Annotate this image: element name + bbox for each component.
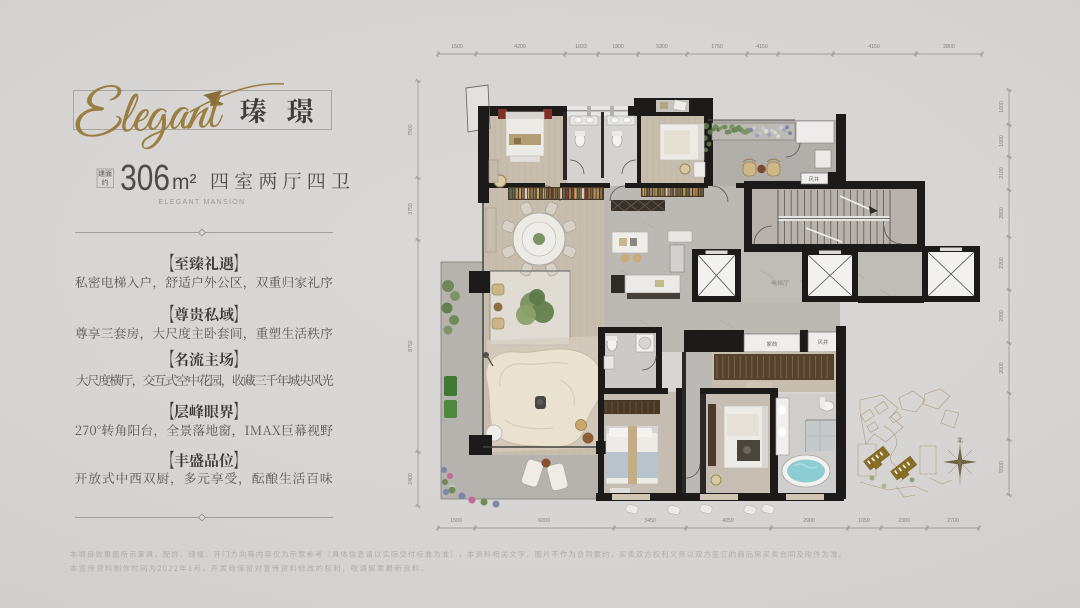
svg-text:2800: 2800	[999, 207, 1005, 219]
svg-text:4150: 4150	[756, 44, 768, 50]
svg-text:5500: 5500	[999, 461, 1005, 473]
svg-text:1800: 1800	[612, 44, 624, 50]
svg-text:7500: 7500	[408, 124, 414, 136]
svg-text:4200: 4200	[514, 44, 526, 50]
svg-text:1500: 1500	[451, 44, 463, 50]
svg-text:ELEGANT MANSION: ELEGANT MANSION	[159, 199, 246, 206]
svg-text:2300: 2300	[898, 518, 910, 524]
svg-text:m²: m²	[172, 171, 197, 194]
svg-text:5300: 5300	[656, 44, 668, 50]
svg-text:3450: 3450	[644, 518, 656, 524]
svg-text:1000: 1000	[999, 101, 1005, 113]
svg-text:2100: 2100	[999, 167, 1005, 179]
svg-text:4050: 4050	[722, 518, 734, 524]
svg-text:6000: 6000	[538, 518, 550, 524]
svg-text:2900: 2900	[803, 518, 815, 524]
svg-text:1750: 1750	[711, 44, 723, 50]
svg-text:8750: 8750	[408, 340, 414, 352]
svg-text:4150: 4150	[868, 44, 880, 50]
svg-text:2000: 2000	[999, 362, 1005, 374]
svg-text:2200: 2200	[999, 257, 1005, 269]
svg-text:306: 306	[120, 158, 170, 198]
svg-text:1000: 1000	[999, 135, 1005, 147]
svg-text:1050: 1050	[858, 518, 870, 524]
svg-text:1500: 1500	[450, 518, 462, 524]
svg-text:2800: 2800	[943, 44, 955, 50]
svg-text:2400: 2400	[408, 473, 414, 485]
svg-text:2700: 2700	[947, 518, 959, 524]
svg-text:2900: 2900	[999, 310, 1005, 322]
svg-text:3750: 3750	[408, 203, 414, 215]
svg-text:1833: 1833	[575, 44, 587, 50]
